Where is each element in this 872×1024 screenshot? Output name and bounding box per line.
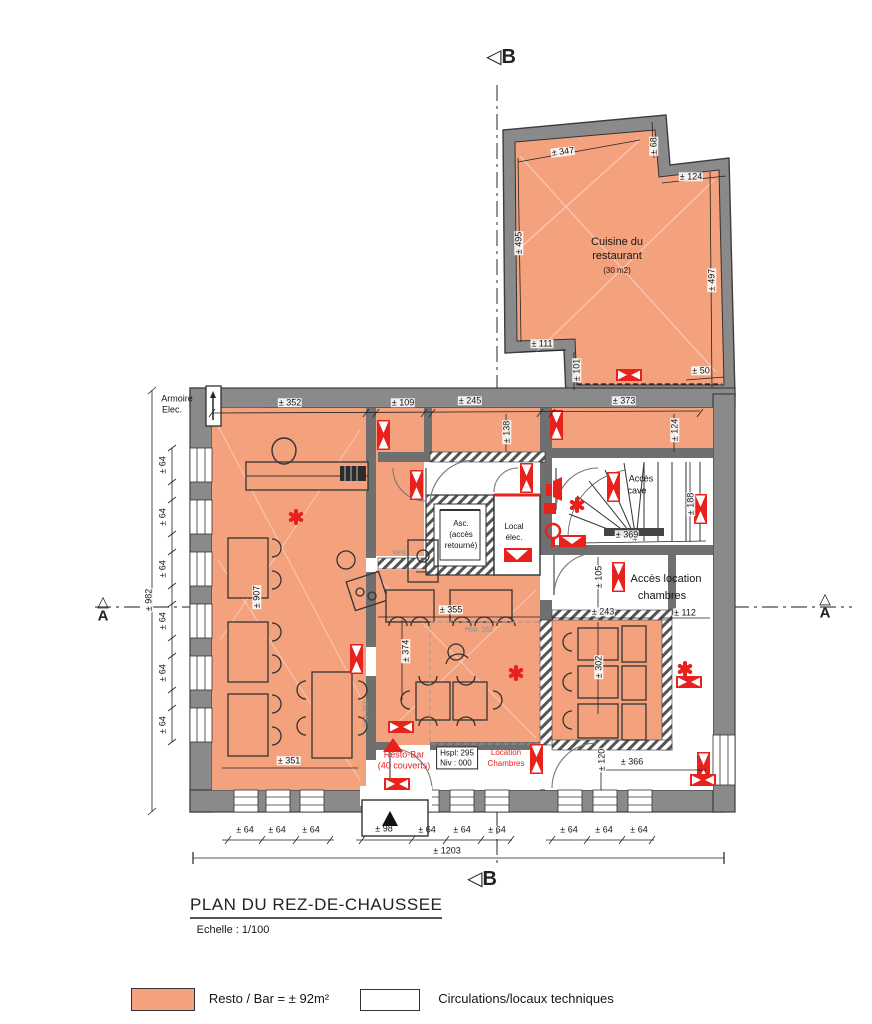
- dim-label: ± 302: [594, 655, 603, 679]
- door-detector-icon: [607, 472, 620, 502]
- dim-label: ± 243: [591, 607, 615, 616]
- section-marker-b-bottom: ◁B: [467, 870, 497, 888]
- dim-label: ± 64: [559, 825, 578, 834]
- dim-label: ± 64: [594, 825, 613, 834]
- room-label-location-chambres: Location: [490, 749, 522, 757]
- dim-label: ± 497: [707, 268, 716, 292]
- dim-label: ± 112: [673, 608, 697, 617]
- floor-plan-page: ◁B ◁B △A △A Cuisine du restaurant (30 m2…: [0, 0, 872, 1024]
- dim-label: ± 64: [158, 715, 167, 734]
- dim-label: ± 64: [158, 507, 167, 526]
- room-label-local-elec2: élec.: [505, 534, 524, 542]
- room-label-acces-location2: chambres: [637, 591, 687, 603]
- dim-label: ± 64: [452, 825, 471, 834]
- vent-icon: [690, 774, 716, 786]
- dim-label: ± 105: [594, 565, 603, 589]
- dim-label: ± 101: [572, 358, 581, 382]
- legend-swatch-circulation: [360, 989, 420, 1011]
- section-marker-a-right: △A: [819, 593, 831, 620]
- dim-label: ± 352: [278, 398, 302, 407]
- dim-label: ± 98: [374, 824, 393, 833]
- page-title: PLAN DU REZ-DE-CHAUSSEE: [190, 895, 442, 919]
- ceiling-height-label-left: Hsp 262: [362, 700, 369, 728]
- dim-label: ± 64: [417, 825, 436, 834]
- door-detector-icon: [694, 494, 707, 524]
- room-label-location-chambres2: Chambres: [487, 760, 526, 768]
- dim-label: ± 109: [391, 398, 415, 407]
- door-detector-icon: [550, 410, 563, 440]
- room-label-asc2: (accès: [448, 531, 474, 539]
- dim-label: ± 64: [487, 825, 506, 834]
- local-elec-vent-icon: [504, 548, 532, 562]
- dim-label: ± 68: [649, 136, 658, 155]
- room-label-resto-bar2: (40 couverts): [377, 761, 432, 770]
- room-label-acces-location: Accès location: [630, 574, 703, 586]
- room-label-cuisine: Cuisine du: [590, 237, 644, 249]
- door-detector-icon: [612, 562, 625, 592]
- room-label-acces-cave2: cave: [626, 486, 647, 495]
- dim-label: ± 64: [158, 611, 167, 630]
- legend-swatch-resto: [131, 988, 195, 1011]
- dim-label: ± 355: [439, 605, 463, 614]
- room-label-local-elec: Local: [503, 523, 524, 531]
- room-label-acces-cave: Accès: [628, 474, 655, 483]
- kitchen-vent-icon: [616, 369, 642, 381]
- door-detector-icon: [377, 420, 390, 450]
- dim-label: ± 495: [514, 231, 523, 255]
- dim-label: ± 366: [620, 757, 644, 766]
- ceiling-height-label: Hsp: 262: [464, 626, 494, 633]
- dim-label: ± 64: [158, 559, 167, 578]
- right-window: [713, 735, 735, 785]
- dim-label: ± 351: [277, 756, 301, 765]
- level-info-box: Hspl: 295Niv : 000: [436, 746, 478, 769]
- vent-icon: [384, 778, 410, 790]
- dim-label: ± 64: [301, 825, 320, 834]
- dim-label: ± 64: [158, 455, 167, 474]
- dim-label: ± 64: [235, 825, 254, 834]
- scale-label: Echelle : 1/100: [196, 925, 271, 937]
- vent-icon: [388, 721, 414, 733]
- room-label-cuisine-area: (30 m2): [602, 267, 632, 275]
- room-label-asc: Asc.: [452, 520, 470, 528]
- room-label-asc3: retourné): [444, 542, 478, 550]
- dim-label: ± 50: [691, 366, 710, 375]
- dim-label: ± 138: [502, 420, 511, 444]
- dim-label-overall: ± 1203: [432, 846, 461, 855]
- dim-label: ± 111: [530, 339, 553, 348]
- left-triangle-icon: ◁: [486, 46, 501, 68]
- legend-label-resto: Resto / Bar = ± 92m²: [208, 992, 330, 1006]
- dim-label: ± 120: [597, 748, 606, 772]
- room-label-armoire2: Elec.: [161, 405, 183, 414]
- dim-label: ± 64: [267, 825, 286, 834]
- dim-label: ± 124: [670, 418, 679, 442]
- room-label-cuisine2: restaurant: [591, 251, 643, 263]
- legend-label-circulation: Circulations/locaux techniques: [437, 992, 615, 1006]
- door-detector-icon: [530, 744, 543, 774]
- armoire-elec-box: [206, 386, 221, 426]
- room-label-resto-bar: Resto-Bar: [383, 750, 426, 759]
- room-label-armoire: Armoire: [160, 394, 194, 403]
- dim-label: ± 374: [401, 639, 410, 663]
- dim-label: ± 64: [158, 663, 167, 682]
- dim-label: ± 245: [458, 396, 482, 405]
- section-marker-b-top: ◁B: [486, 48, 516, 66]
- section-marker-a-left: △A: [97, 596, 109, 623]
- floor-plan-drawing: [0, 0, 872, 1024]
- dim-label: ± 982: [144, 588, 153, 612]
- dim-label: ± 124: [679, 172, 703, 181]
- dim-label: ± 907: [252, 585, 261, 609]
- door-detector-icon: [350, 644, 363, 674]
- dim-label: ± 188: [686, 492, 695, 516]
- left-triangle-icon: ◁: [467, 868, 482, 890]
- door-detector-icon: [410, 470, 423, 500]
- door-detector-icon: [520, 463, 533, 493]
- dim-label: ± 373: [612, 396, 636, 405]
- room-label-vestiaire: Vest.: [391, 549, 409, 556]
- dim-label: ± 64: [629, 825, 648, 834]
- vent-icon: [676, 676, 702, 688]
- dim-label: ± 369: [615, 530, 639, 539]
